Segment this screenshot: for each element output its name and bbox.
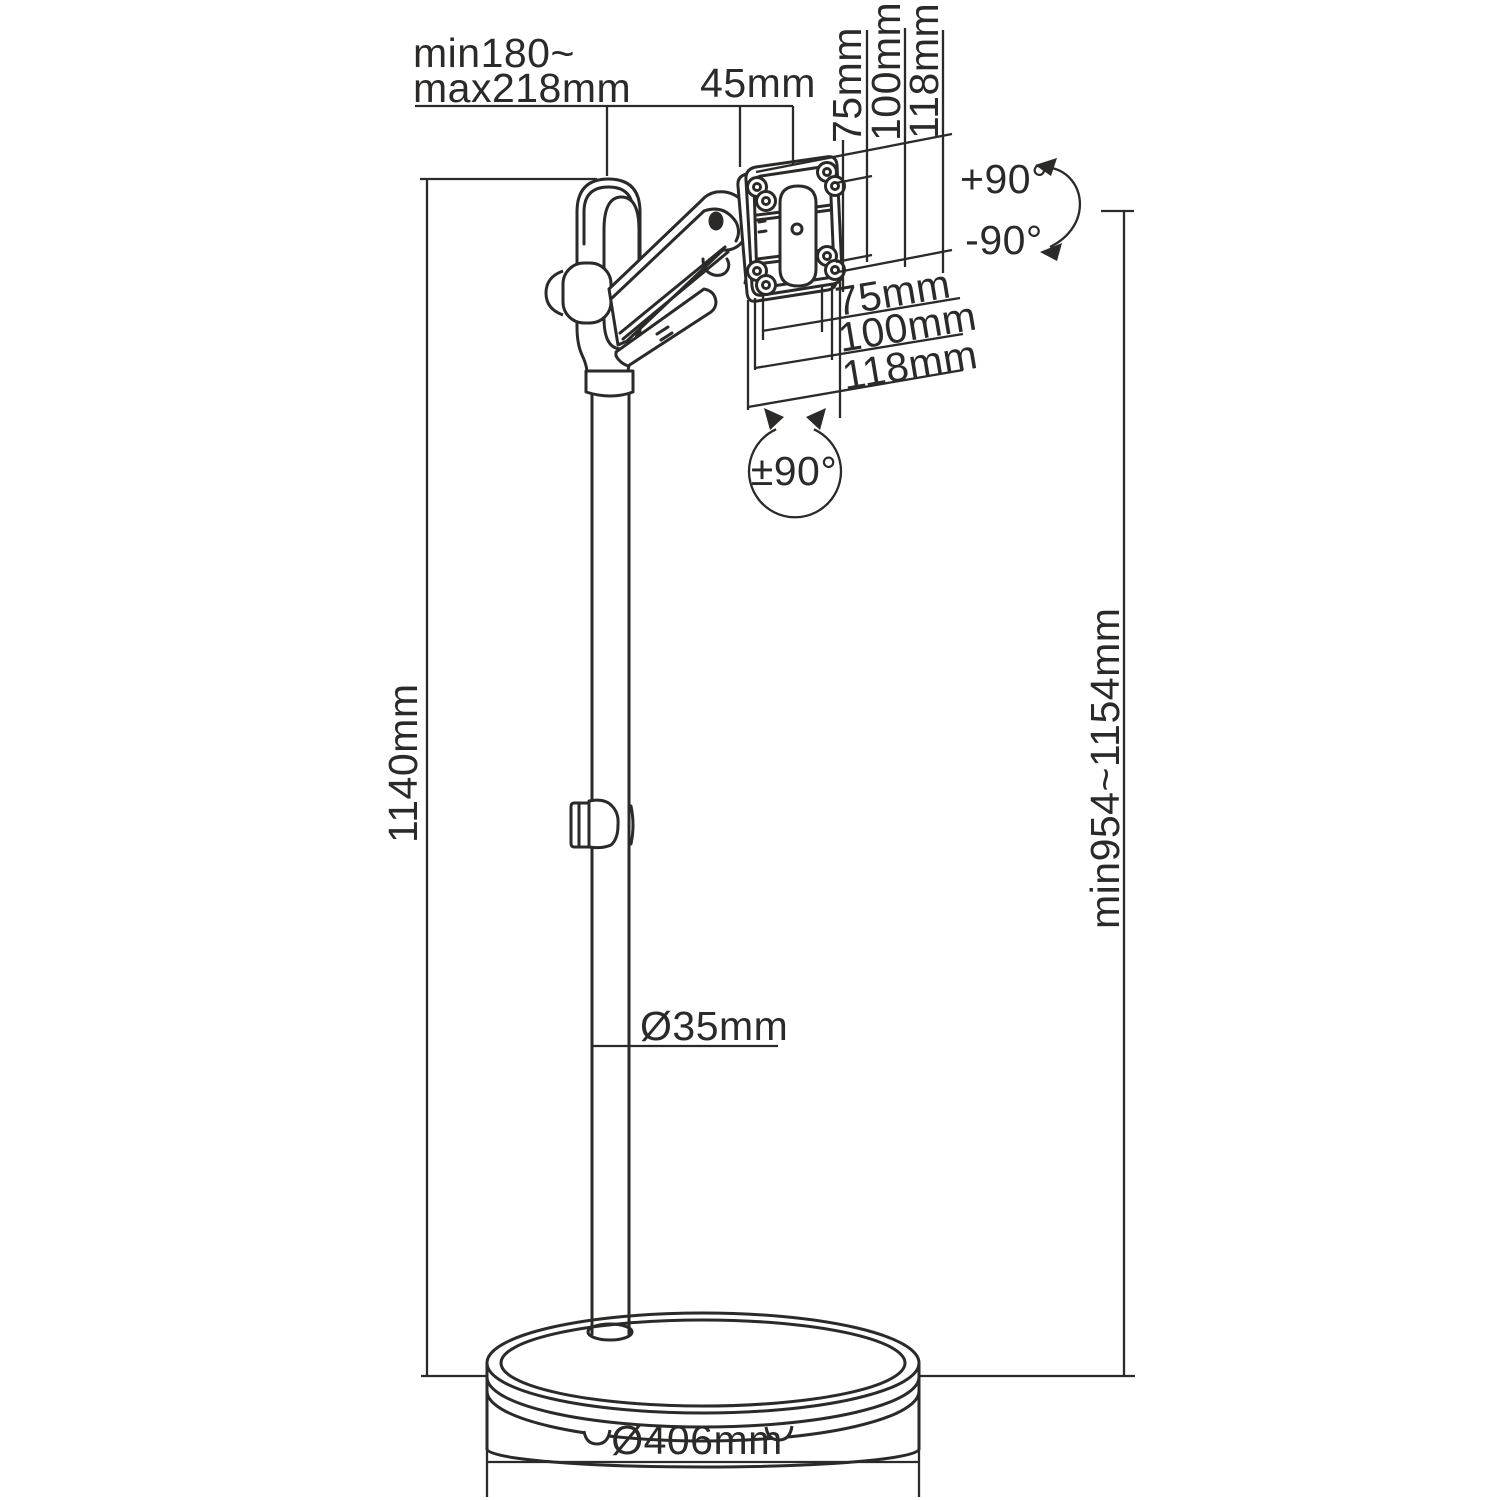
- label-pole-diameter: Ø35mm: [640, 1003, 788, 1049]
- label-swivel: ±90°: [751, 448, 838, 494]
- holder-collar: [586, 371, 633, 396]
- label-height-range: min954~1154mm: [1082, 608, 1128, 929]
- label-tilt-plus: +90°: [960, 156, 1048, 202]
- cable-clip: [571, 800, 633, 847]
- pole: [571, 394, 633, 1340]
- label-pole-height: 1140mm: [380, 684, 426, 843]
- label-head-depth: 45mm: [700, 60, 816, 106]
- adjustment-knob-side: [546, 271, 563, 315]
- dimension-drawing-page: min180~ max218mm 45mm 75mm 100mm 118mm +…: [0, 0, 1500, 1500]
- vesa-plate: [738, 157, 845, 302]
- label-tilt-minus: -90°: [965, 217, 1043, 263]
- label-vesa-vertical-118: 118mm: [901, 3, 947, 139]
- label-arm-reach-max: max218mm: [413, 65, 631, 111]
- base-foot: [584, 1430, 610, 1444]
- arm-pivot-hole: [709, 212, 724, 231]
- floor-stand-dimension-diagram: min180~ max218mm 45mm 75mm 100mm 118mm +…: [0, 0, 1500, 1500]
- vesa-center-slide: [780, 186, 816, 286]
- adjustment-knob: [563, 263, 611, 323]
- label-base-diameter: Ø406mm: [611, 1417, 783, 1463]
